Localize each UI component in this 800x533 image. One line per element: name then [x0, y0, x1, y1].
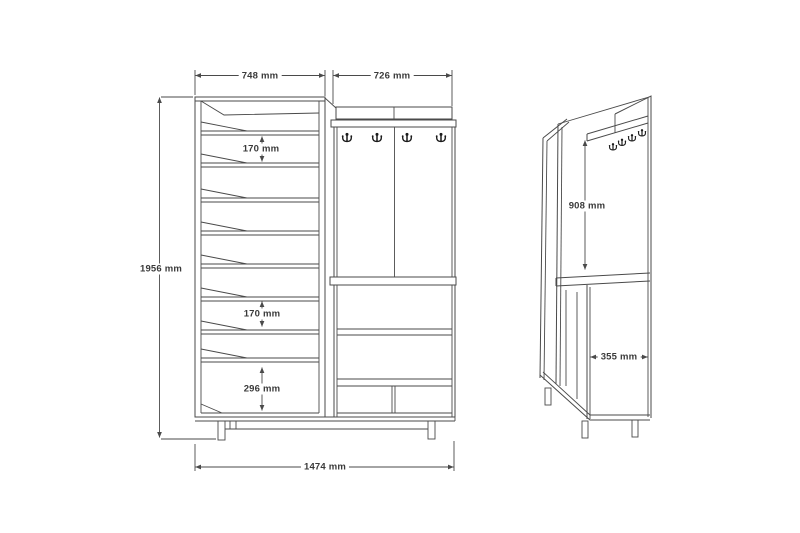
coat-hook-icon — [638, 129, 646, 136]
shoe-shelf — [201, 189, 319, 202]
shoe-shelf — [201, 122, 319, 135]
front-leg — [218, 421, 225, 440]
side-leg — [632, 420, 638, 437]
coat-hooks-front — [342, 133, 446, 142]
dim-label-1956: 1956 mm — [137, 264, 185, 275]
coat-hook-icon — [618, 139, 626, 146]
side-view — [540, 96, 651, 438]
shoe-shelf — [201, 222, 319, 235]
dim-label-1474: 1474 mm — [301, 462, 349, 473]
coat-hook-icon — [372, 133, 382, 142]
top-ledge — [587, 116, 648, 141]
shoe-shelf — [201, 321, 319, 334]
lower-open-section — [330, 277, 456, 417]
side-legs — [545, 388, 638, 438]
side-leg — [582, 421, 588, 438]
dim-label-296: 296 mm — [241, 384, 284, 395]
coat-hook-icon — [342, 133, 352, 142]
back-panel — [615, 96, 651, 418]
hook-panel-section — [325, 98, 456, 277]
shoe-shelves — [201, 122, 319, 362]
coat-hook-icon — [436, 133, 446, 142]
dim-label-170-upper: 170 mm — [240, 144, 283, 155]
side-bench — [556, 273, 650, 286]
side-leg — [545, 388, 551, 405]
shoe-shelf — [201, 255, 319, 268]
dim-label-170-lower: 170 mm — [241, 309, 284, 320]
dim-label-748: 748 mm — [239, 71, 282, 82]
shoe-shelf — [201, 154, 319, 167]
front-view — [160, 70, 457, 471]
rear-leg — [230, 421, 236, 429]
front-leg — [428, 421, 435, 439]
coat-hook-icon — [402, 133, 412, 142]
dim-label-355: 355 mm — [598, 352, 641, 363]
side-dimensions — [585, 141, 648, 358]
dim-label-726: 726 mm — [371, 71, 414, 82]
shoe-shelf — [201, 349, 319, 362]
coat-hooks-side — [609, 129, 646, 150]
front-dimensions — [160, 70, 455, 471]
shoe-shelf — [201, 288, 319, 301]
technical-drawing-canvas: 748 mm 726 mm 1956 mm 170 mm 170 mm 296 … — [0, 0, 800, 533]
coat-hook-icon — [628, 134, 636, 141]
coat-hook-icon — [609, 143, 617, 150]
base-and-legs — [195, 417, 455, 440]
dim-label-908: 908 mm — [566, 201, 609, 212]
